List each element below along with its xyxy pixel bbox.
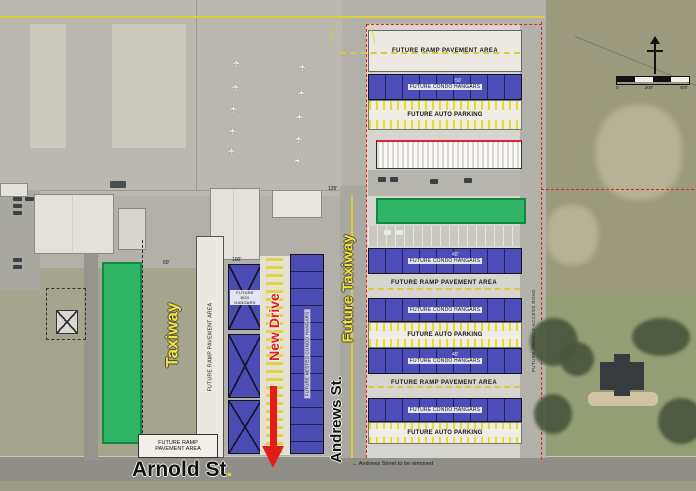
future-condo-hangars-row: FUTURE CONDO HANGARS — [368, 398, 522, 422]
access-road-label: FUTURE VEHICLE ACCESS ROAD — [531, 289, 536, 372]
dimension-label: 125' — [328, 186, 337, 192]
condo-hangars-label: FUTURE CONDO HANGARS — [408, 307, 482, 313]
ramp-area-label-vertical: FUTURE RAMP PAVEMENT AREA — [207, 303, 213, 392]
new-drive-arrow-head — [262, 446, 284, 468]
new-drive-label: New Drive — [266, 293, 282, 361]
future-taxiway-callout: Future Taxiway — [326, 206, 370, 370]
midfield-hangar-ridge — [233, 189, 234, 257]
north-arrow-icon — [654, 44, 656, 74]
future-ramp-area-north: FUTURE RAMP PAVEMENT AREA — [368, 30, 522, 72]
dimension-label: 60' — [163, 260, 170, 266]
car — [396, 230, 403, 235]
scale-bar — [616, 76, 690, 85]
future-auto-parking-row: FUTURE AUTO PARKING — [368, 100, 522, 130]
auto-parking-label: FUTURE AUTO PARKING — [405, 430, 484, 436]
andrews-note-text: Andrews Street to be removed — [359, 461, 433, 467]
parcel-dashed-line — [142, 240, 143, 458]
existing-hangar-building — [376, 140, 522, 169]
car — [464, 178, 472, 183]
dimension-label: 40' — [452, 252, 459, 258]
auto-parking-label: FUTURE AUTO PARKING — [405, 332, 484, 338]
future-auto-parking-row: FUTURE AUTO PARKING — [368, 422, 522, 444]
field-dry-patch — [546, 205, 598, 265]
aircraft-icon: ✈ — [232, 83, 242, 91]
future-condo-hangars-row: FUTURE CONDO HANGARS — [368, 74, 522, 100]
ramp-label-box: FUTURE RAMP PAVEMENT AREA — [138, 434, 218, 458]
apron-tiedown-band — [112, 24, 186, 148]
highlight-green-bar-west — [102, 262, 142, 444]
aircraft-icon: ✈ — [296, 113, 306, 121]
car — [25, 197, 34, 201]
future-ramp-strip-west: FUTURE RAMP PAVEMENT AREA — [196, 236, 224, 458]
future-taxiway-label: Future Taxiway — [340, 234, 357, 342]
arnold-st-period: . — [227, 458, 233, 481]
new-drive-arrow-shaft — [270, 386, 277, 448]
condo-hangars-label: FUTURE CONDO HANGARS — [408, 84, 482, 90]
highlight-green-bar-east — [376, 198, 526, 224]
taxiway-line — [0, 16, 545, 18]
taxilane-centerline — [340, 52, 520, 54]
hangar-roof-ridge — [72, 195, 73, 251]
car — [384, 230, 391, 235]
car — [378, 177, 386, 182]
large-hangar-building — [34, 194, 114, 254]
scale-bar-labels: 0 200' 400' — [616, 85, 688, 90]
north-arrow-head — [650, 36, 660, 44]
residence-building-x — [56, 310, 78, 334]
car — [13, 204, 22, 208]
car — [13, 258, 22, 262]
future-auto-parking-row: FUTURE AUTO PARKING — [368, 322, 522, 348]
nested-condo-label: FUTURE NESTED CONDO HANGARS — [304, 310, 310, 399]
condo-hangars-label: FUTURE CONDO HANGARS — [408, 258, 482, 264]
scale-label: 400' — [680, 85, 688, 90]
future-ramp-area-south: FUTURE RAMP PAVEMENT AREA — [368, 372, 520, 394]
aircraft-icon: ✈ — [230, 105, 240, 113]
tree — [632, 318, 690, 356]
existing-striped-lot — [368, 226, 520, 246]
car — [430, 179, 438, 184]
north-arrow-crossbar — [647, 50, 663, 52]
aircraft-icon: ✈ — [229, 127, 239, 135]
apron-edge-line — [196, 0, 197, 190]
future-condo-hangars-row: FUTURE CONDO HANGARS — [368, 348, 522, 374]
ramp-area-label: FUTURE RAMP PAVEMENT AREA — [391, 280, 497, 286]
aircraft-icon: ✈ — [228, 147, 238, 155]
future-ramp-area-mid: FUTURE RAMP PAVEMENT AREA — [368, 272, 520, 294]
scale-bar-segment — [653, 77, 671, 82]
taxilane-centerline — [368, 386, 520, 388]
future-condo-hangars-row: FUTURE CONDO HANGARS — [368, 298, 522, 322]
car — [390, 177, 398, 182]
car — [13, 265, 22, 269]
field-dry-patch — [596, 105, 682, 200]
dimension-label: 100' — [232, 257, 241, 263]
andrews-st-callout: Andrews St. — [314, 350, 358, 488]
dimension-label: 45' — [452, 352, 459, 358]
new-drive-callout: New Drive — [252, 268, 296, 386]
airport-site-plan: ✈ ✈ ✈ ✈ ✈ ✈ ✈ ✈ ✈ ✈ FUTURE RAMP PAVEMENT… — [0, 0, 696, 491]
access-road-callout: FUTURE VEHICLE ACCESS ROAD — [521, 240, 545, 420]
taxilane-centerline — [368, 288, 520, 290]
auto-parking-label: FUTURE AUTO PARKING — [405, 112, 484, 118]
scale-label: 0 — [616, 85, 619, 90]
vehicle — [110, 181, 126, 188]
aircraft-icon: ✈ — [298, 89, 308, 97]
aircraft-icon: ✈ — [233, 59, 243, 67]
future-condo-hangars-row: FUTURE CONDO HANGARS — [368, 248, 522, 274]
future-box-hangar — [228, 400, 262, 454]
ramp-box-line2: PAVEMENT AREA — [155, 446, 201, 452]
taxiway-callout: Taxiway — [150, 280, 194, 390]
existing-midfield-building — [272, 190, 322, 218]
andrews-removal-note: ← Andrews Street to be removed — [352, 461, 433, 467]
aircraft-icon: ✈ — [295, 135, 305, 143]
arnold-st-label: Arnold St — [132, 458, 227, 481]
scale-bar-segment — [617, 77, 635, 82]
apron-tiedown-band — [30, 24, 66, 148]
tree — [560, 342, 594, 376]
taxiway-label: Taxiway — [162, 303, 182, 368]
aircraft-icon: ✈ — [299, 63, 309, 71]
house-roof-wing — [614, 354, 630, 396]
existing-parking — [368, 170, 520, 196]
left-arrow-icon: ← — [352, 461, 358, 467]
arnold-st-callout: Arnold St. — [132, 458, 232, 482]
tree — [658, 398, 696, 444]
dev-boundary-north — [366, 24, 542, 25]
west-drive-road — [84, 238, 98, 460]
east-parcel-line — [541, 189, 694, 190]
dimension-label: 50' — [455, 78, 462, 84]
scale-label: 200' — [645, 85, 653, 90]
condo-hangars-label: FUTURE CONDO HANGARS — [408, 407, 482, 413]
car — [13, 197, 22, 201]
scale-bar-segment — [635, 77, 653, 82]
taxiway-fillet — [353, 18, 375, 44]
andrews-st-label: Andrews St. — [328, 376, 345, 463]
condo-hangars-label: FUTURE CONDO HANGARS — [408, 358, 482, 364]
small-building — [0, 183, 28, 197]
scale-bar-segment — [671, 77, 689, 82]
car — [13, 211, 22, 215]
aircraft-icon: ✈ — [294, 157, 304, 165]
